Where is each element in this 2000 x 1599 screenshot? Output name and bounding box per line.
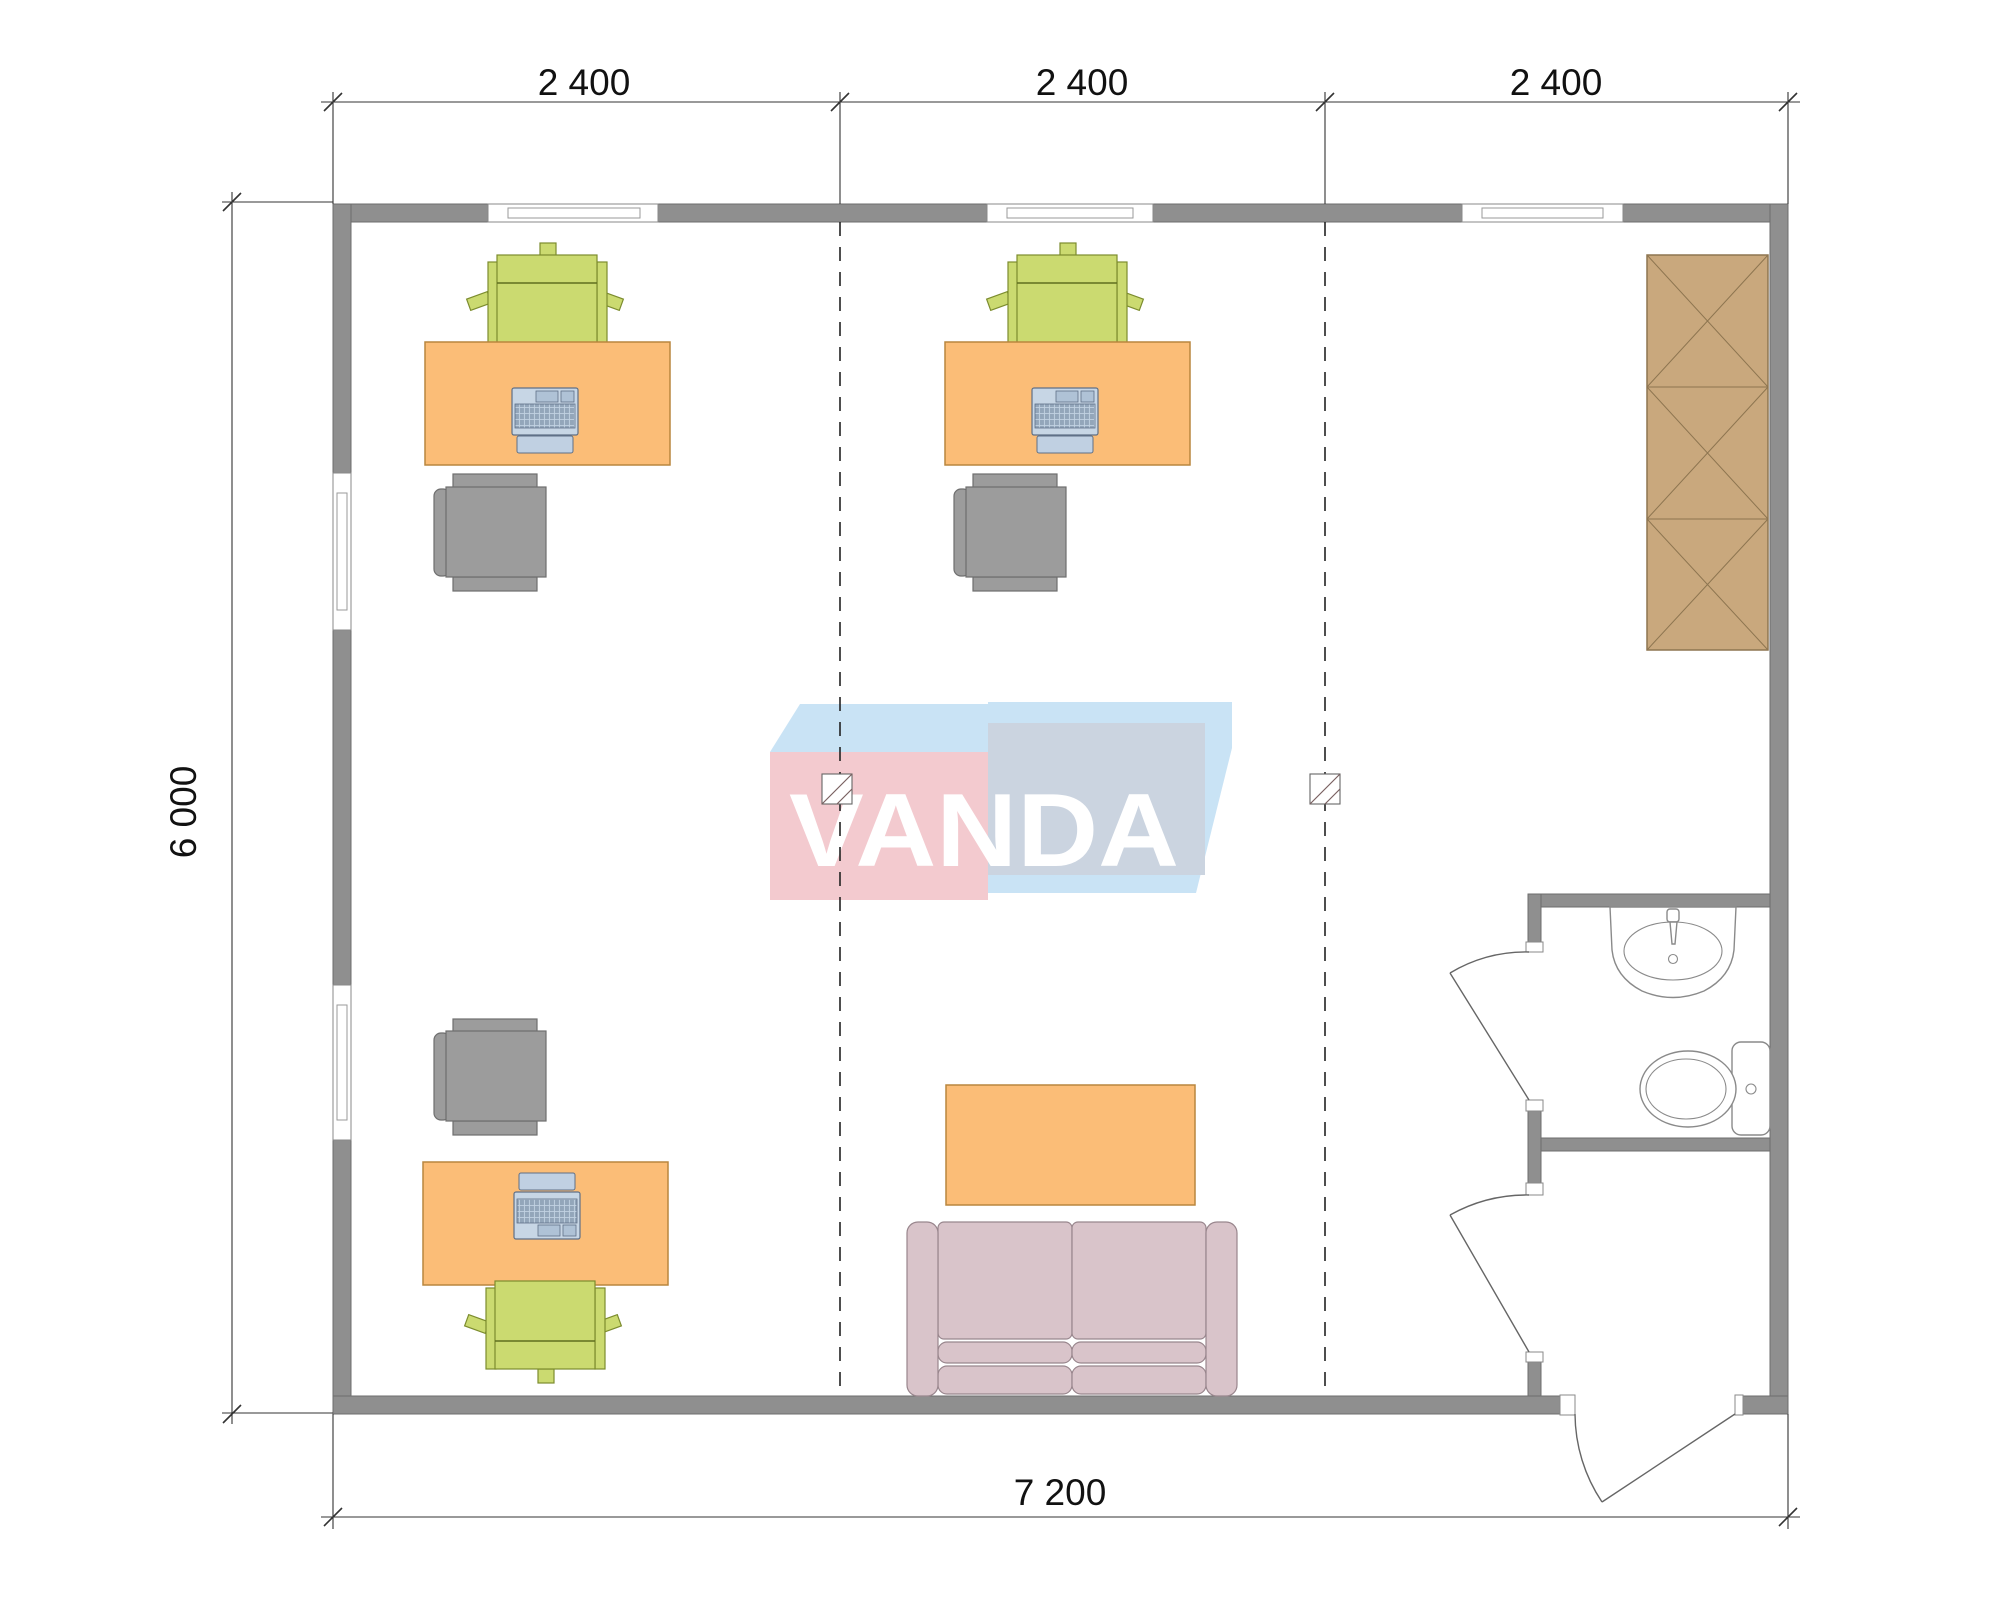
divider-wall-segment: [1528, 1111, 1541, 1183]
wardrobe-icon: [1647, 255, 1768, 650]
top-wall-segment: [1623, 204, 1788, 222]
door-swing-icon: [1450, 1195, 1529, 1352]
visitor-chair-icon: [954, 474, 1066, 591]
door-swing-icon: [1450, 952, 1529, 1100]
office-chair-icon: [987, 243, 1144, 343]
dimension-label: 7 200: [1014, 1472, 1107, 1513]
sink-icon: [1610, 907, 1736, 998]
left-wall-segment: [333, 1140, 351, 1414]
left-dimension: 6 000: [163, 192, 333, 1424]
laptop-icon: [1032, 388, 1098, 453]
dimension-label: 2 400: [1510, 62, 1603, 103]
window-icon: [488, 204, 658, 222]
door-swing-icon: [1575, 1414, 1735, 1502]
laptop-icon: [512, 388, 578, 453]
toilet-icon: [1640, 1042, 1770, 1135]
top-wall-segment: [1153, 204, 1462, 222]
workplace-2: [945, 243, 1190, 591]
right-wall: [1770, 204, 1788, 1414]
coffee-table-icon: [946, 1085, 1195, 1205]
bathroom: [1610, 907, 1770, 1135]
laptop-icon: [514, 1173, 580, 1239]
window-icon: [987, 204, 1153, 222]
dimension-label: 2 400: [538, 62, 631, 103]
door-jamb: [1735, 1395, 1743, 1415]
visitor-chair-icon: [434, 1019, 546, 1135]
floor-plan-canvas: VANDA: [0, 0, 2000, 1599]
divider-wall-segment: [1528, 894, 1541, 942]
axis-marker-icon: [822, 774, 852, 804]
dimension-label: 2 400: [1036, 62, 1129, 103]
lounge-zone: [907, 1085, 1237, 1396]
floor-plan-drawing: VANDA: [0, 0, 2000, 1599]
workplace-3: [423, 1019, 668, 1383]
visitor-chair-icon: [434, 474, 546, 591]
bottom-wall-segment: [333, 1396, 1560, 1414]
bathroom-top-wall: [1528, 894, 1770, 907]
dimension-label: 6 000: [163, 766, 204, 859]
workplace-1: [425, 243, 670, 591]
bottom-dimension: 7 200: [321, 1414, 1800, 1529]
axis-marker-icon: [1310, 774, 1340, 804]
top-dimension: 2 400 2 400 2 400: [321, 62, 1800, 204]
window-icon: [1462, 204, 1623, 222]
bathroom-bottom-wall: [1541, 1138, 1770, 1151]
divider-wall-segment: [1528, 1362, 1541, 1396]
left-wall-segment: [333, 630, 351, 985]
door-jamb: [1526, 942, 1543, 952]
door-jamb: [1526, 1100, 1543, 1111]
top-wall-segment: [333, 204, 488, 222]
bottom-wall-segment: [1743, 1396, 1788, 1414]
door-jamb: [1560, 1395, 1575, 1415]
office-chair-icon: [467, 243, 624, 343]
window-icon: [333, 985, 351, 1140]
left-wall-segment: [333, 204, 351, 473]
window-icon: [333, 473, 351, 630]
office-chair-icon: [465, 1281, 622, 1383]
sofa-icon: [907, 1222, 1237, 1396]
doors: [1450, 952, 1735, 1502]
top-wall-segment: [658, 204, 987, 222]
door-jamb: [1526, 1352, 1543, 1362]
logo-top-face: [770, 704, 1018, 752]
door-jamb: [1526, 1183, 1543, 1195]
